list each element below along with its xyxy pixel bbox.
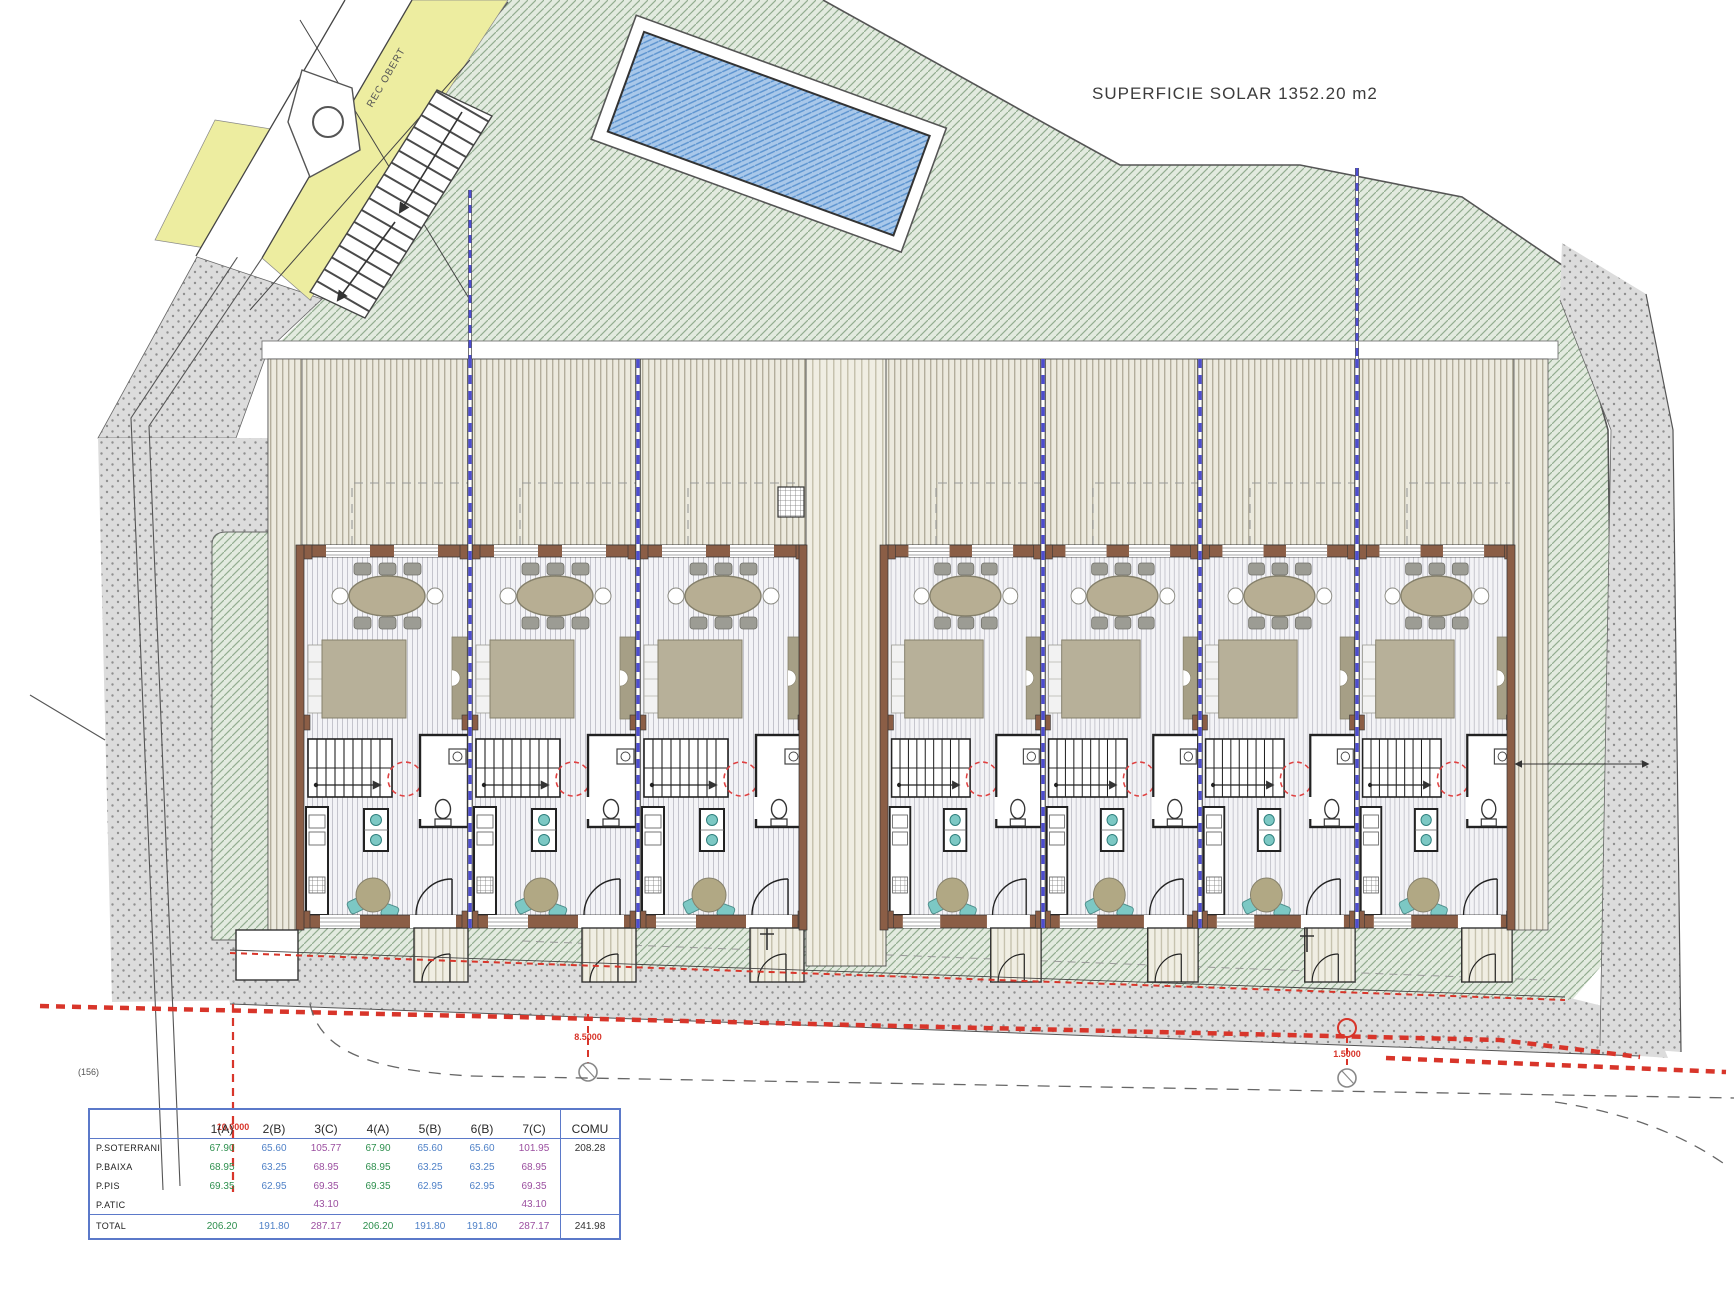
manhole-icon [313,107,343,137]
table-cell [561,1196,621,1215]
table-cell: 63.25 [248,1158,300,1177]
row-label: P.SOTERRANI [89,1139,196,1158]
column-header: COMU [561,1109,621,1139]
unit-7 [1357,545,1514,982]
table-cell: 68.95 [196,1158,248,1177]
unit-3 [638,545,806,982]
row-label: P.ATIC [89,1196,196,1215]
column-header: 1(A) [196,1109,248,1139]
unit-6 [1200,545,1357,982]
areas-table: 1(A)2(B)3(C)4(A)5(B)6(B)7(C)COMUP.SOTERR… [88,1108,621,1240]
side-terrace-right [1514,359,1548,930]
column-header: 3(C) [300,1109,352,1139]
table-cell: 68.95 [352,1158,404,1177]
table-cell: 69.35 [352,1177,404,1196]
table-cell: 287.17 [508,1215,561,1239]
garden-pocket-left [212,532,268,940]
table-cell: 62.95 [456,1177,508,1196]
table-cell: 101.95 [508,1139,561,1158]
table-cell: 62.95 [248,1177,300,1196]
table-cell: 65.60 [456,1139,508,1158]
floor-plan-page: REC OBERT [0,0,1734,1296]
table-cell: 105.77 [300,1139,352,1158]
unit-4 [886,545,1043,982]
table-cell: 68.95 [300,1158,352,1177]
unit-2 [470,545,638,982]
column-header: 6(B) [456,1109,508,1139]
column-header: 4(A) [352,1109,404,1139]
table-cell [456,1196,508,1215]
terrace-stair [778,487,804,517]
unit-5 [1043,545,1200,982]
table-cell: 43.10 [300,1196,352,1215]
plot-ref-label: (156) [78,1067,99,1077]
row-label: TOTAL [89,1215,196,1239]
rear-path [262,341,1558,359]
table-cell [561,1158,621,1177]
dimension-label-8-5: 8.5000 [574,1032,602,1042]
site-plan-drawing: REC OBERT [0,0,1734,1296]
table-cell: 208.28 [561,1139,621,1158]
table-cell: 191.80 [404,1215,456,1239]
table-cell: 191.80 [456,1215,508,1239]
table-cell: 206.20 [196,1215,248,1239]
column-header: 2(B) [248,1109,300,1139]
unit-1 [302,545,470,982]
table-cell [196,1196,248,1215]
table-cell: 69.35 [300,1177,352,1196]
table-cell: 67.90 [352,1139,404,1158]
table-cell: 65.60 [248,1139,300,1158]
table-cell: 62.95 [404,1177,456,1196]
table-cell [352,1196,404,1215]
central-passage [806,359,886,966]
table-cell: 63.25 [456,1158,508,1177]
table-cell: 69.35 [508,1177,561,1196]
table-cell: 63.25 [404,1158,456,1177]
column-header: 7(C) [508,1109,561,1139]
table-cell: 67.90 [196,1139,248,1158]
row-label: P.PIS [89,1177,196,1196]
table-cell [561,1177,621,1196]
dimension-label-1-5: 1.5000 [1333,1049,1361,1059]
table-cell [248,1196,300,1215]
column-header: 5(B) [404,1109,456,1139]
column-header [89,1109,196,1139]
table-cell: 241.98 [561,1215,621,1239]
table-cell: 65.60 [404,1139,456,1158]
row-label: P.BAIXA [89,1158,196,1177]
table-cell: 69.35 [196,1177,248,1196]
table-cell: 68.95 [508,1158,561,1177]
table-cell: 191.80 [248,1215,300,1239]
table-cell: 206.20 [352,1215,404,1239]
table-cell: 287.17 [300,1215,352,1239]
table-cell [404,1196,456,1215]
table-cell: 43.10 [508,1196,561,1215]
terraces-left-block [268,359,806,545]
page-title: SUPERFICIE SOLAR 1352.20 m2 [1092,84,1378,104]
